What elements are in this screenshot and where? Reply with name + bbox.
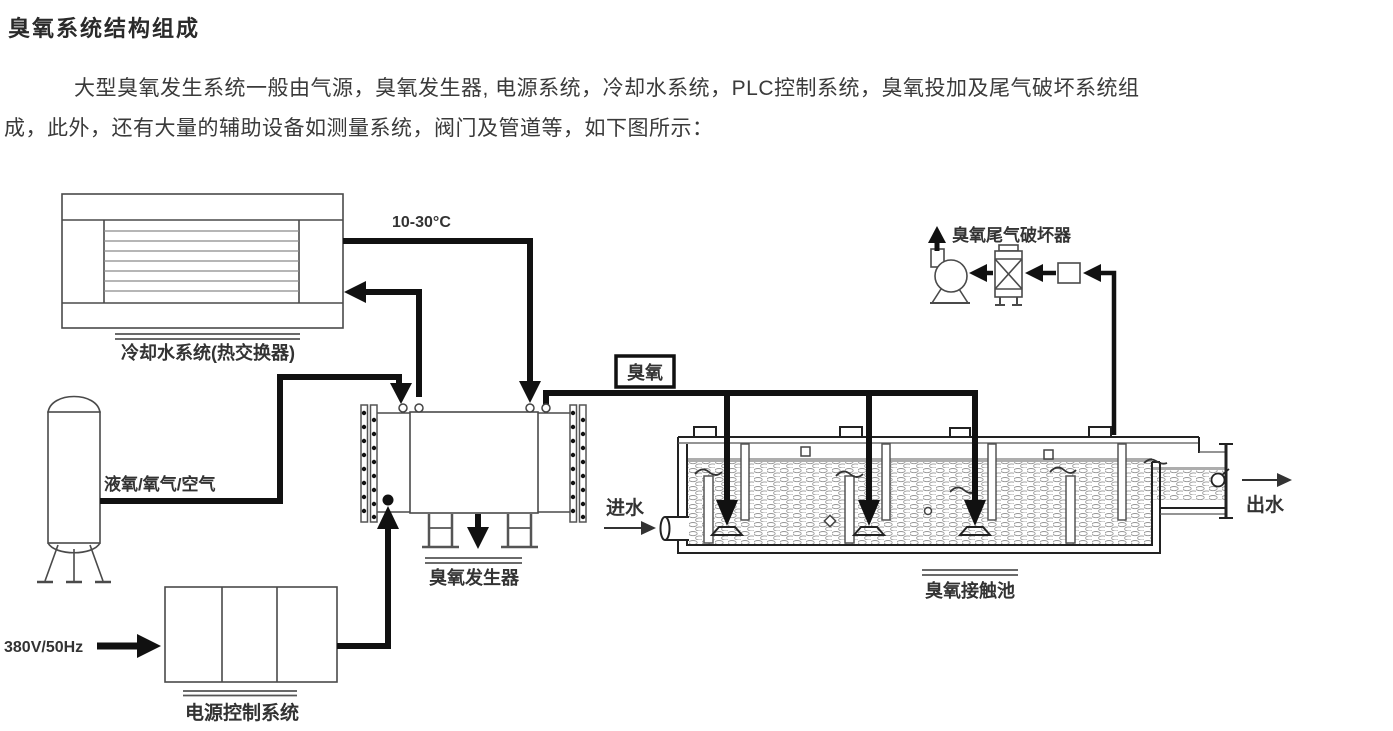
ozone-label-box: 臭氧 — [616, 356, 674, 387]
ozone-label: 臭氧 — [627, 362, 663, 383]
pool-top-fittings — [694, 427, 1111, 437]
blower-fan — [935, 260, 967, 292]
offgas-pipe — [1092, 273, 1114, 435]
gas-source-tank — [37, 397, 111, 583]
water-temp-label: 10-30°C — [392, 214, 451, 231]
contact-pool-label: 臭氧接触池 — [925, 580, 1015, 601]
paragraph-line-2: 成，此外，还有大量的辅助设备如测量系统，阀门及管道等，如下图所示： — [4, 112, 714, 142]
cooling-water-supply-pipe — [343, 241, 530, 383]
ozone-generator-label: 臭氧发生器 — [429, 567, 520, 588]
page-title: 臭氧系统结构组成 — [8, 11, 200, 43]
generator-ports — [399, 404, 550, 412]
heat-exchanger — [62, 194, 343, 339]
cooling-system-label: 冷却水系统(热交换器) — [121, 342, 295, 363]
water-out-label: 出水 — [1246, 493, 1285, 516]
power-cable — [337, 518, 388, 646]
water-in-label: 进水 — [606, 497, 645, 519]
offgas-destructor — [930, 245, 1080, 305]
inlet-pipe-stub — [661, 517, 690, 541]
power-control-cabinet — [165, 587, 337, 696]
ozone-contact-pool — [661, 427, 1234, 575]
power-control-label: 电源控制系统 — [185, 701, 299, 724]
ozone-system-diagram: 臭氧 冷却水系统(热交换器) 10-30°C 液氧/氧气/空气 臭氧发生器 38… — [0, 0, 1393, 731]
paragraph-line-1: 大型臭氧发生系统一般由气源，臭氧发生器, 电源系统，冷却水系统，PLC控制系统，… — [74, 72, 1140, 102]
document-page: 臭氧 冷却水系统(热交换器) 10-30°C 液氧/氧气/空气 臭氧发生器 38… — [0, 0, 1393, 731]
destructor-vessel — [995, 245, 1022, 305]
cooling-water-return-pipe — [354, 292, 419, 397]
offgas-filter-box — [1058, 263, 1080, 283]
offgas-destructor-label: 臭氧尾气破坏器 — [952, 225, 1072, 245]
gas-source-label: 液氧/氧气/空气 — [104, 474, 215, 494]
power-input-label: 380V/50Hz — [4, 639, 83, 656]
pool-water — [687, 458, 1152, 545]
